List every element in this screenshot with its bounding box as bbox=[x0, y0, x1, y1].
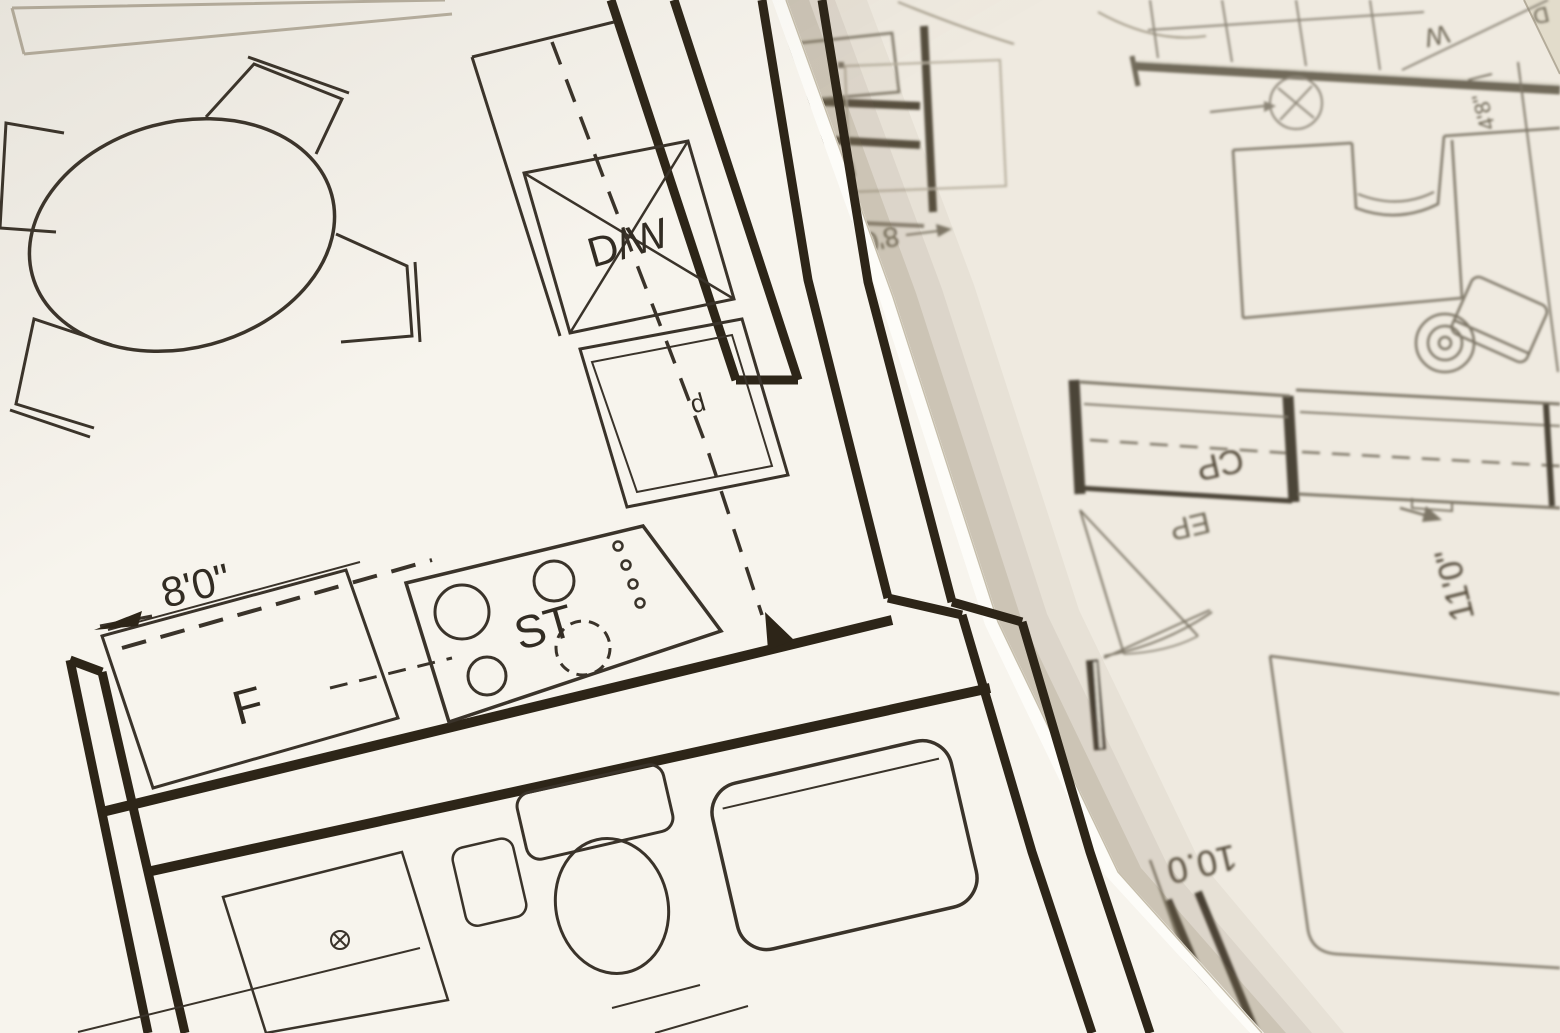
vignette-overlay bbox=[0, 0, 1560, 1033]
blueprint-photo: F 8'0" W D 4'8" CP EP 11'0" 10.0 bbox=[0, 0, 1560, 1033]
floorplan-scene: F 8'0" W D 4'8" CP EP 11'0" 10.0 bbox=[0, 0, 1560, 1033]
